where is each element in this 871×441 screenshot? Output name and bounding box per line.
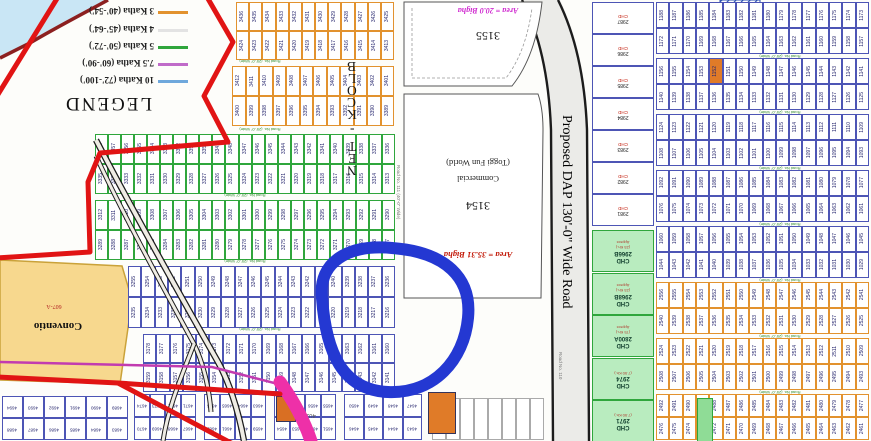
- plot-number: 1048: [820, 233, 825, 244]
- plot-cell: 3254: [141, 266, 154, 297]
- plot-number: 2478: [847, 400, 852, 411]
- plot-cell: 1064: [816, 196, 829, 222]
- plot-number: 1149: [753, 66, 758, 77]
- plot-grid-band: 1188118711861185118411831182118111801179…: [656, 2, 869, 54]
- plot-cell: 2544: [816, 282, 829, 308]
- plot-number: 2549: [753, 289, 758, 300]
- plot-number: 4672: [168, 403, 178, 408]
- plot-cell: 3302: [225, 200, 238, 230]
- plot-cell: 1175: [829, 2, 842, 28]
- plot-cell: 3317: [330, 164, 343, 194]
- plot-cell: 1111: [829, 114, 842, 140]
- parcel-3154-outline: [404, 94, 543, 298]
- plot-cell: 3304: [199, 200, 212, 230]
- plot-number: 3287: [125, 239, 130, 250]
- plot-number: 3166: [306, 343, 311, 354]
- chd-block-num: 2971: [616, 417, 629, 424]
- plot-number: 3272: [321, 239, 326, 250]
- plot-cell: 1112: [816, 114, 829, 140]
- plot-cell: 2535: [723, 308, 736, 334]
- plot-cell: 4662: [204, 417, 220, 440]
- plot-cell: 1056: [709, 226, 722, 252]
- plot-cell: 2497: [802, 364, 815, 390]
- plot-cell: 3290: [382, 200, 395, 230]
- plot-cell: 1100: [763, 140, 776, 166]
- plot-number: 1054: [740, 233, 745, 244]
- plot-number: 2555: [673, 289, 678, 300]
- cross-road-label: Road No. (25'-0" Wide): [180, 59, 340, 64]
- plot-cell: 1079: [829, 170, 842, 196]
- plot-cell: 2498: [789, 364, 802, 390]
- plot-cell: 3238: [355, 266, 368, 297]
- plot-cell: 3272: [317, 230, 330, 260]
- plot-cell: 2556: [656, 282, 669, 308]
- highlighted-plot: [428, 392, 456, 434]
- plot-number: 3399: [250, 105, 255, 116]
- plot-number: 1148: [767, 66, 772, 77]
- plot-number: 1131: [780, 92, 785, 103]
- plot-number: 1177: [807, 10, 812, 21]
- plot-number: 1159: [833, 36, 838, 47]
- plot-number: 4661: [222, 426, 232, 431]
- plot-number: 1079: [833, 177, 838, 188]
- plot-cell: 3332: [134, 164, 147, 194]
- plot-cell: 2517: [749, 338, 762, 364]
- plot-cell: 2462: [842, 417, 855, 440]
- plot-number: 1068: [767, 203, 772, 214]
- plot-cell: 3273: [304, 230, 317, 260]
- plot-cell: 1154: [683, 58, 696, 84]
- plot-number: 3344: [282, 143, 287, 154]
- plot-cell: 3218: [355, 297, 368, 328]
- plot-cell: 3294: [330, 200, 343, 230]
- plot-number: 1144: [820, 66, 825, 77]
- plot-cell: 1170: [683, 28, 696, 54]
- plot-cell: [530, 398, 544, 440]
- chd-label-cell: 2985CHD: [592, 66, 654, 98]
- plot-cell: 3292: [356, 200, 369, 230]
- plot-cell: 3334: [108, 164, 121, 194]
- plot-cell: 3356: [121, 134, 134, 164]
- chd-green-block: CHD2966B(23 Kh.)Approx: [592, 230, 654, 272]
- convention-label: Conventio: [6, 320, 110, 332]
- plot-grid-band: 3436343534343433343234313430342934283427…: [236, 2, 394, 60]
- plot-number: 4693: [28, 405, 38, 410]
- plot-cell: 2507: [669, 364, 682, 390]
- plot-number: 3342: [308, 143, 313, 154]
- plot-cell: 1033: [802, 252, 815, 278]
- plot-number: 3325: [229, 173, 234, 184]
- plot-number: 3319: [308, 173, 313, 184]
- plot-cell: 1106: [683, 140, 696, 166]
- plot-number: 2499: [780, 371, 785, 382]
- plot-number: 4664: [238, 403, 248, 408]
- plot-cell: 1127: [829, 84, 842, 110]
- plot-cell: 3402: [367, 66, 381, 96]
- plot-number: 2546: [793, 289, 798, 300]
- plot-number: 3389: [385, 105, 390, 116]
- plot-cell: 1108: [656, 140, 669, 166]
- plot-cell: 2547: [776, 282, 789, 308]
- plot-cell: 1086: [736, 170, 749, 196]
- plot-cell: 1061: [856, 196, 869, 222]
- plot-number: 1078: [847, 177, 852, 188]
- plot-cell: 3413: [381, 31, 394, 60]
- plot-number: 3155: [200, 372, 205, 383]
- plot-number: 1087: [727, 177, 732, 188]
- plot-number: 3164: [333, 343, 338, 354]
- chd-block-sub: (7.50 Kh.): [614, 412, 632, 417]
- plot-cell: 1050: [789, 226, 802, 252]
- plot-number: 3276: [269, 239, 274, 250]
- plot-number: 1187: [673, 10, 678, 21]
- plot-cell: 1104: [709, 140, 722, 166]
- plot-cell: 1044: [656, 252, 669, 278]
- plot-number: 2479: [833, 400, 838, 411]
- chd-cell-code: CHD: [618, 173, 628, 178]
- plot-number: 1163: [780, 36, 785, 47]
- plot-number: 4663: [253, 403, 263, 408]
- plot-number: 3274: [295, 239, 300, 250]
- plot-number: 3423: [253, 40, 258, 51]
- cross-road-label: Road No. (25'-0" Wide): [700, 166, 860, 171]
- cross-road-label: Road No. (25'-0" Wide): [165, 193, 325, 198]
- plot-cell: 1088: [709, 170, 722, 196]
- plot-number: 2528: [820, 315, 825, 326]
- plot-cell: 1042: [683, 252, 696, 278]
- plot-cell: [474, 398, 488, 440]
- plot-number: 1109: [860, 122, 865, 133]
- plot-number: 4674: [137, 403, 147, 408]
- plot-number: 3242: [306, 276, 311, 287]
- plot-number: 3411: [250, 76, 255, 87]
- plot-cell: 3419: [302, 31, 315, 60]
- plot-cell: 3414: [368, 31, 381, 60]
- plot-number: 3338: [360, 143, 365, 154]
- plot-number: 1173: [860, 10, 865, 21]
- plot-cell: 3146: [315, 363, 328, 392]
- plot-number: 2476: [660, 423, 665, 434]
- chd-green-block: CHD2800A(75 Kh.)Approx: [592, 315, 654, 357]
- plot-cell: 3324: [239, 164, 252, 194]
- plot-cell: 1072: [709, 196, 722, 222]
- plot-cell: 1051: [776, 226, 789, 252]
- plot-cell: 2463: [829, 417, 842, 440]
- plot-number: 1110: [847, 122, 852, 132]
- plot-cell: 1136: [709, 84, 722, 110]
- plot-number: 3233: [159, 307, 164, 318]
- plot-number: 1047: [833, 233, 838, 244]
- plot-number: 3283: [177, 239, 182, 250]
- plot-number: 3151: [253, 372, 258, 383]
- plot-cell: 4672: [165, 394, 181, 417]
- plot-cell: 4649: [364, 394, 384, 417]
- plot-cell: 4689: [107, 396, 128, 418]
- parcel-3155-number: 3155: [430, 28, 546, 43]
- plot-number: 3294: [334, 209, 339, 220]
- plot-cell: 3312: [95, 200, 108, 230]
- plot-cell: 1159: [829, 28, 842, 54]
- plot-number: 3433: [280, 11, 285, 22]
- plot-number: 3300: [256, 209, 261, 220]
- plot-number: 3167: [293, 343, 298, 354]
- plot-cell: 3234: [141, 297, 154, 328]
- plot-cell: 3396: [286, 96, 300, 126]
- plot-number: 4643: [407, 426, 417, 431]
- plot-number: 2556: [660, 289, 665, 300]
- plot-grid-band: 1156115511541153115211511150114911481147…: [656, 58, 869, 110]
- chd-block-num: 2800A: [614, 334, 632, 341]
- plot-number: 1071: [727, 203, 732, 214]
- plot-cell: 3357: [108, 134, 121, 164]
- plot-cell: 3283: [173, 230, 186, 260]
- plot-cell: 1143: [829, 58, 842, 84]
- plot-number: 3414: [372, 40, 377, 51]
- plot-cell: 3176: [170, 334, 183, 363]
- plot-cell: 3401: [381, 66, 395, 96]
- plot-number: 1070: [740, 203, 745, 214]
- plot-number: 3296: [308, 209, 313, 220]
- plot-number: 2522: [687, 345, 692, 356]
- plot-number: 1084: [767, 177, 772, 188]
- plot-cell: 1161: [802, 28, 815, 54]
- plot-cell: 2532: [763, 308, 776, 334]
- plot-cell: 1139: [669, 84, 682, 110]
- plot-number: 1126: [847, 92, 852, 103]
- plot-grid-band: 46744673467246714670466946684667: [134, 394, 196, 440]
- plot-number: 2513: [807, 345, 812, 356]
- plot-cell: 3284: [160, 230, 173, 260]
- plot-cell: 3229: [208, 297, 221, 328]
- block-label-char: -: [350, 124, 355, 136]
- plot-cell: 2514: [789, 338, 802, 364]
- plot-cell: 3427: [355, 2, 368, 31]
- plot-cell: 3355: [134, 134, 147, 164]
- plot-cell: 1149: [749, 58, 762, 84]
- plot-number: 2481: [807, 400, 812, 411]
- plot-cell: 3351: [186, 134, 199, 164]
- plot-cell: 1070: [736, 196, 749, 222]
- plot-number: 1171: [673, 36, 678, 47]
- plot-number: 2520: [713, 345, 718, 356]
- plot-number: 2485: [753, 400, 758, 411]
- plot-number: 2493: [860, 371, 865, 382]
- plot-cell: 1085: [749, 170, 762, 196]
- plot-number: 2540: [660, 315, 665, 326]
- plot-number: 1151: [727, 66, 732, 77]
- plot-number: 1174: [847, 10, 852, 21]
- plot-number: 1051: [780, 233, 785, 244]
- plot-cell: 1188: [656, 2, 669, 28]
- plot-number: 1115: [780, 122, 785, 132]
- plot-cell: 1137: [696, 84, 709, 110]
- plot-cell: 3162: [355, 334, 368, 363]
- plot-cell: 1067: [776, 196, 789, 222]
- plot-number: 4662: [207, 426, 217, 431]
- plot-number: 3335: [99, 173, 104, 184]
- plot-cell: 2515: [776, 338, 789, 364]
- plot-number: 1140: [660, 92, 665, 103]
- plot-cell: 3287: [121, 230, 134, 260]
- plot-cell: 1068: [763, 196, 776, 222]
- plot-cell: 1041: [696, 252, 709, 278]
- plot-number: 3328: [190, 173, 195, 184]
- plot-cell: 1114: [789, 114, 802, 140]
- plot-cell: 3174: [196, 334, 209, 363]
- plot-cell: 3170: [249, 334, 262, 363]
- plot-number: 2550: [740, 289, 745, 300]
- plot-number: 1083: [780, 177, 785, 188]
- plot-number: 3304: [203, 209, 208, 220]
- plot-cell: 2550: [736, 282, 749, 308]
- plot-number: 3238: [359, 276, 364, 287]
- plot-cell: 1167: [723, 28, 736, 54]
- plot-number: 4644: [388, 426, 398, 431]
- plot-number: 3436: [240, 11, 245, 22]
- plot-number: 1124: [660, 122, 665, 133]
- chd-block-name: CHD: [617, 341, 630, 348]
- plot-cell: 3243: [288, 266, 301, 297]
- plot-number: 1065: [807, 203, 812, 214]
- plot-cell: 1116: [763, 114, 776, 140]
- plot-cell: 1115: [776, 114, 789, 140]
- plot-number: 2483: [780, 400, 785, 411]
- plot-cell: 3409: [273, 66, 287, 96]
- plot-number: 1172: [660, 36, 665, 47]
- plot-number: 4665: [222, 403, 232, 408]
- plot-cell: 3239: [342, 266, 355, 297]
- plot-number: 3250: [199, 276, 204, 287]
- plot-cell: 2521: [696, 338, 709, 364]
- plot-cell: 1081: [802, 170, 815, 196]
- plot-number: 3336: [386, 143, 391, 154]
- plot-cell: 1037: [749, 252, 762, 278]
- plot-number: 3178: [147, 343, 152, 354]
- plot-number: 3148: [293, 372, 298, 383]
- plot-cell: 1083: [776, 170, 789, 196]
- plot-cell: 3155: [196, 363, 209, 392]
- chd-cell-code: CHD: [618, 109, 628, 114]
- plot-number: 1035: [780, 259, 785, 270]
- plot-cell: 3161: [369, 334, 382, 363]
- legend-item-label: 4 Katha (45'-64'): [30, 24, 154, 34]
- plot-number: 1107: [673, 148, 678, 159]
- plot-number: 1061: [860, 203, 865, 214]
- plot-number: 2541: [860, 289, 865, 300]
- plot-cell: 3432: [289, 2, 302, 31]
- plot-number: 3173: [213, 343, 218, 354]
- plot-cell: 1148: [763, 58, 776, 84]
- plot-number: 1184: [713, 10, 718, 21]
- plot-cell: 2548: [763, 282, 776, 308]
- plot-number: 1118: [740, 122, 745, 132]
- plot-number: 3255: [132, 276, 137, 287]
- plot-cell: 3398: [259, 96, 273, 126]
- plot-cell: 3269: [356, 230, 369, 260]
- plot-number: 1030: [847, 259, 852, 270]
- plot-number: 3313: [386, 173, 391, 184]
- chd-block-num: 2966B: [614, 249, 632, 256]
- plot-cell: 1063: [829, 196, 842, 222]
- plot-number: 3232: [172, 307, 177, 318]
- plot-cell: 2525: [856, 308, 869, 334]
- plot-cell: 3147: [302, 363, 315, 392]
- plot-number: 3177: [160, 343, 165, 354]
- road-110-label: Road No. 110: [558, 352, 563, 427]
- plot-grid-band: 2524252325222521252025192518251725162515…: [656, 338, 869, 390]
- plot-cell: 2518: [736, 338, 749, 364]
- plot-cell: 3145: [329, 363, 342, 392]
- plot-number: 3397: [277, 105, 282, 116]
- plot-cell: 3160: [382, 334, 395, 363]
- plot-cell: 3168: [276, 334, 289, 363]
- plot-number: 2470: [740, 423, 745, 434]
- plot-cell: 2541: [856, 282, 869, 308]
- plot-number: 4686: [49, 427, 59, 432]
- plot-number: 3228: [226, 307, 231, 318]
- plot-number: 3285: [151, 239, 156, 250]
- plot-number: 1103: [727, 148, 732, 159]
- plot-cell: 3328: [186, 164, 199, 194]
- plot-cell: 4683: [107, 418, 128, 440]
- plot-cell: 2467: [776, 417, 789, 440]
- plot-number: 3326: [216, 173, 221, 184]
- plot-number: 2530: [793, 315, 798, 326]
- plot-cell: 1123: [669, 114, 682, 140]
- plot-cell: 3330: [160, 164, 173, 194]
- plot-cell: 1153: [696, 58, 709, 84]
- plot-cell: 2464: [816, 417, 829, 440]
- plot-cell: 1087: [723, 170, 736, 196]
- plot-number: 3435: [253, 11, 258, 22]
- plot-cell: 1172: [656, 28, 669, 54]
- plot-number: 1181: [753, 10, 758, 21]
- plot-cell: 2534: [736, 308, 749, 334]
- plot-number: 1094: [847, 147, 852, 158]
- plot-cell: 2504: [709, 364, 722, 390]
- plot-cell: 1144: [816, 58, 829, 84]
- plot-cell: 2478: [842, 394, 855, 417]
- plot-cell: 3296: [304, 200, 317, 230]
- plot-cell: 3349: [212, 134, 225, 164]
- plot-cell: 2553: [696, 282, 709, 308]
- plot-number: 3231: [186, 307, 191, 318]
- plot-cell: 3165: [315, 334, 328, 363]
- plot-number: 3327: [203, 173, 208, 184]
- plot-cell: 1080: [816, 170, 829, 196]
- plot-number: 3253: [159, 276, 164, 287]
- plot-number: 3235: [132, 307, 137, 318]
- plot-cell: 1181: [749, 2, 762, 28]
- plot-cell: 1146: [789, 58, 802, 84]
- plot-cell: 4671: [181, 394, 197, 417]
- plot-cell: 3331: [147, 164, 160, 194]
- plot-cell: 1152: [709, 58, 722, 84]
- plot-number: 3226: [252, 307, 257, 318]
- plot-cell: 1109: [856, 114, 869, 140]
- plot-number: 1099: [780, 147, 785, 158]
- cross-road-label: Road No. (25'-0" Wide): [700, 390, 860, 395]
- plot-number: 3418: [319, 40, 324, 51]
- plot-cell: 3279: [225, 230, 238, 260]
- plot-number: 2504: [713, 371, 718, 382]
- plot-cell: 2551: [723, 282, 736, 308]
- plot-number: 1072: [713, 203, 718, 214]
- plot-number: 3241: [319, 276, 324, 287]
- plot-cell: 3149: [276, 363, 289, 392]
- plot-cell: 3345: [265, 134, 278, 164]
- plot-number: 1127: [833, 92, 838, 103]
